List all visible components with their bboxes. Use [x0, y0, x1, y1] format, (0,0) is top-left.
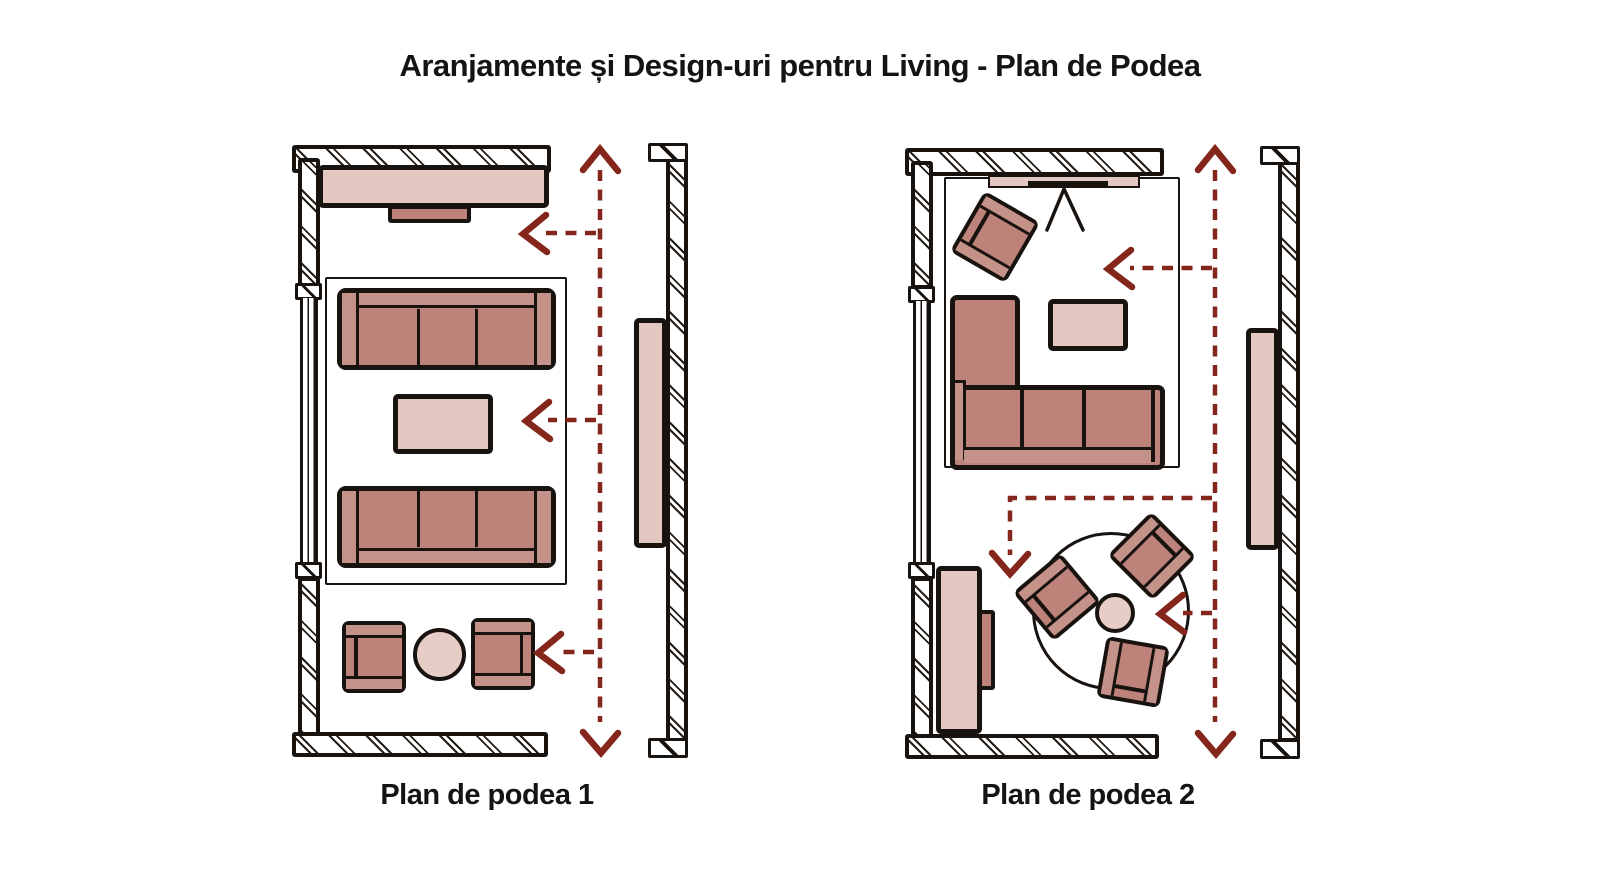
p1-wall-right-cap-bottom	[648, 738, 688, 758]
p1-sofa-bottom-armrest-right	[534, 491, 551, 563]
p2-l-shaped-arrow-head	[992, 553, 1028, 574]
p1-wall-left-lower	[298, 577, 320, 757]
p2-wall-right	[1278, 161, 1300, 742]
p1-armchair-left	[342, 621, 406, 693]
p1-wall-right	[666, 158, 688, 742]
p1-sofa-top-backrest	[359, 293, 534, 308]
p1-sofa-top-armrest-right	[534, 293, 551, 365]
p1-sideboard	[634, 318, 667, 548]
p2-sideboard-right	[1246, 328, 1279, 550]
p2-wall-right-cap-bottom	[1260, 739, 1300, 759]
p1-sofa-top-seat	[359, 309, 534, 366]
p1-arrowheads	[583, 149, 618, 753]
plan-2-label: Plan de podea 2	[908, 779, 1268, 812]
p1-wall-bottom	[292, 732, 548, 757]
p1-sofa-bottom-backrest	[359, 548, 534, 563]
p1-tv-unit	[388, 205, 471, 223]
p2-wall-top	[905, 148, 1164, 176]
p1-console	[318, 165, 549, 208]
p2-wall-left-lower	[911, 577, 933, 758]
p2-armchair-south	[1096, 636, 1170, 708]
circulation-arrows-overlay	[0, 0, 1600, 873]
p2-sideboard-left	[936, 566, 982, 734]
p2-lsofa-armrest-right	[1151, 388, 1155, 462]
p1-wall-left-upper	[298, 158, 320, 289]
p1-armchair-right	[471, 618, 535, 690]
p1-sofa-bottom-seat	[359, 491, 534, 548]
p2-tv-screen	[988, 175, 1140, 188]
p2-wall-left-upper	[911, 161, 933, 289]
p2-window	[913, 301, 931, 564]
p2-arrowheads	[1198, 149, 1233, 754]
plan-1-label: Plan de podea 1	[307, 779, 667, 812]
p2-coffee-table	[1048, 299, 1128, 351]
p1-sofa-bottom	[337, 486, 556, 568]
floor-plan-poster: Aranjamente și Design-uri pentru Living …	[0, 0, 1600, 873]
p2-round-table	[1095, 593, 1135, 633]
p2-wall-right-cap-top	[1260, 146, 1300, 165]
p1-sofa-bottom-armrest-left	[342, 491, 359, 563]
p1-sofa-top-armrest-left	[342, 293, 359, 365]
p2-wall-bottom	[905, 734, 1159, 759]
p1-arrow-left-bottom-head	[538, 634, 562, 671]
p2-sideboard-left-detail	[978, 610, 995, 690]
p1-coffee-table	[393, 394, 493, 454]
p1-sofa-top	[337, 288, 556, 370]
p1-window	[300, 298, 318, 564]
p1-round-side-table	[413, 628, 466, 681]
p1-wall-right-cap-top	[648, 143, 688, 162]
p2-lsofa-front-band	[964, 447, 1152, 463]
page-title: Aranjamente și Design-uri pentru Living …	[0, 48, 1600, 84]
p1-arrow-left-top-head	[523, 215, 547, 252]
